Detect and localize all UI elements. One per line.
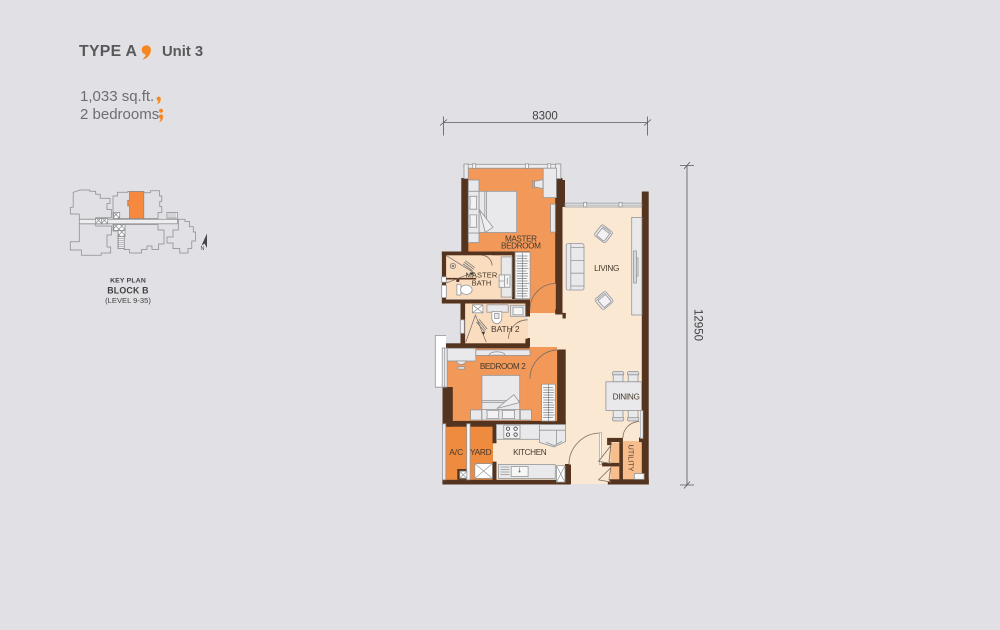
svg-text:KITCHEN: KITCHEN <box>513 448 547 457</box>
svg-text:TYPE A: TYPE A <box>79 43 137 60</box>
svg-text:1,033 sq.ft.: 1,033 sq.ft. <box>80 88 154 105</box>
svg-text:YARD: YARD <box>470 447 492 457</box>
svg-text:BATH 2: BATH 2 <box>491 324 520 334</box>
svg-text:UTILITY: UTILITY <box>626 445 635 472</box>
svg-text:BATH: BATH <box>472 279 492 288</box>
svg-text:A/C: A/C <box>449 447 463 457</box>
svg-text:LIVING: LIVING <box>594 264 619 273</box>
svg-text:BEDROOM: BEDROOM <box>501 242 541 251</box>
svg-text:KEY PLAN: KEY PLAN <box>110 278 146 285</box>
svg-text:Unit 3: Unit 3 <box>162 44 203 60</box>
svg-text:DINING: DINING <box>613 393 640 402</box>
svg-text:(LEVEL 9-35): (LEVEL 9-35) <box>105 296 151 305</box>
svg-text:BLOCK B: BLOCK B <box>107 286 148 296</box>
svg-text:12950: 12950 <box>692 309 704 341</box>
svg-text:BEDROOM 2: BEDROOM 2 <box>480 362 526 371</box>
svg-text:8300: 8300 <box>532 111 558 123</box>
svg-text:2 bedrooms: 2 bedrooms <box>80 106 159 123</box>
svg-text:N: N <box>201 246 205 252</box>
